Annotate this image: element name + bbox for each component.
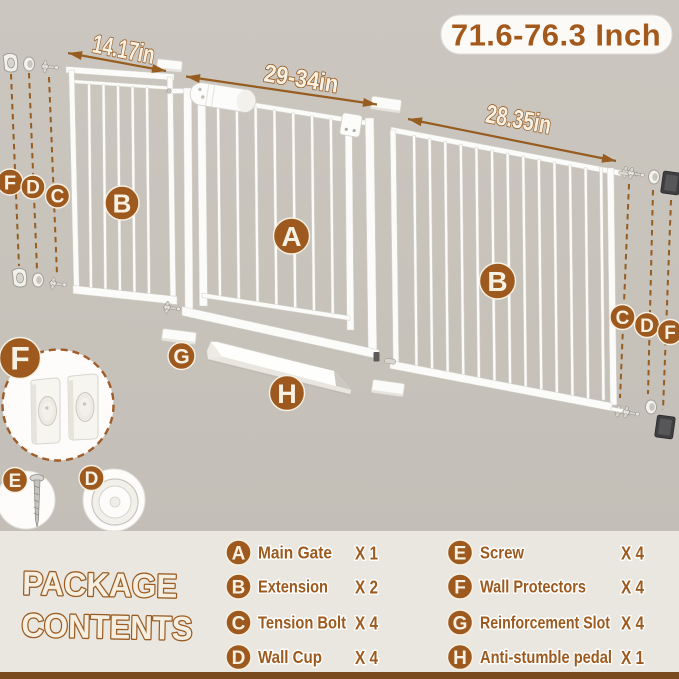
svg-text:D: D xyxy=(232,648,246,669)
svg-text:F: F xyxy=(664,323,676,344)
svg-text:B: B xyxy=(487,266,507,297)
svg-text:PACKAGE: PACKAGE xyxy=(22,564,178,604)
svg-text:G: G xyxy=(173,346,189,369)
svg-text:A: A xyxy=(281,221,301,252)
svg-text:B: B xyxy=(232,577,246,598)
svg-text:D: D xyxy=(640,316,654,337)
svg-text:X 4: X 4 xyxy=(621,578,644,598)
svg-text:F: F xyxy=(4,172,16,194)
svg-text:F: F xyxy=(454,577,466,598)
svg-text:B: B xyxy=(113,188,132,218)
svg-text:C: C xyxy=(232,613,246,634)
svg-text:A: A xyxy=(232,543,246,564)
svg-text:71.6-76.3 Inch: 71.6-76.3 Inch xyxy=(451,18,661,53)
svg-text:E: E xyxy=(9,471,22,492)
svg-text:Tension Bolt: Tension Bolt xyxy=(258,613,346,633)
svg-text:Main Gate: Main Gate xyxy=(258,543,332,563)
svg-text:D: D xyxy=(85,469,99,490)
svg-text:H: H xyxy=(277,379,297,409)
svg-text:C: C xyxy=(51,187,65,208)
svg-text:H: H xyxy=(453,648,467,669)
svg-text:D: D xyxy=(26,178,40,199)
svg-text:X 2: X 2 xyxy=(355,578,378,598)
svg-text:Extension: Extension xyxy=(258,577,328,597)
svg-text:F: F xyxy=(10,340,30,376)
svg-text:Reinforcement Slot: Reinforcement Slot xyxy=(480,613,610,633)
svg-text:Wall Protectors: Wall Protectors xyxy=(480,577,586,597)
svg-text:CONTENTS: CONTENTS xyxy=(21,606,193,647)
svg-text:C: C xyxy=(616,308,630,329)
svg-text:Anti-stumble pedal: Anti-stumble pedal xyxy=(480,647,612,667)
svg-text:X 4: X 4 xyxy=(621,544,644,564)
svg-text:X 4: X 4 xyxy=(621,614,644,634)
svg-text:G: G xyxy=(453,613,468,634)
svg-text:X 1: X 1 xyxy=(621,648,644,668)
svg-text:X 4: X 4 xyxy=(355,614,378,634)
svg-text:X 4: X 4 xyxy=(355,648,378,668)
svg-text:X 1: X 1 xyxy=(355,544,378,564)
svg-text:Screw: Screw xyxy=(480,543,524,563)
svg-text:E: E xyxy=(454,543,467,564)
svg-text:Wall Cup: Wall Cup xyxy=(258,647,322,667)
